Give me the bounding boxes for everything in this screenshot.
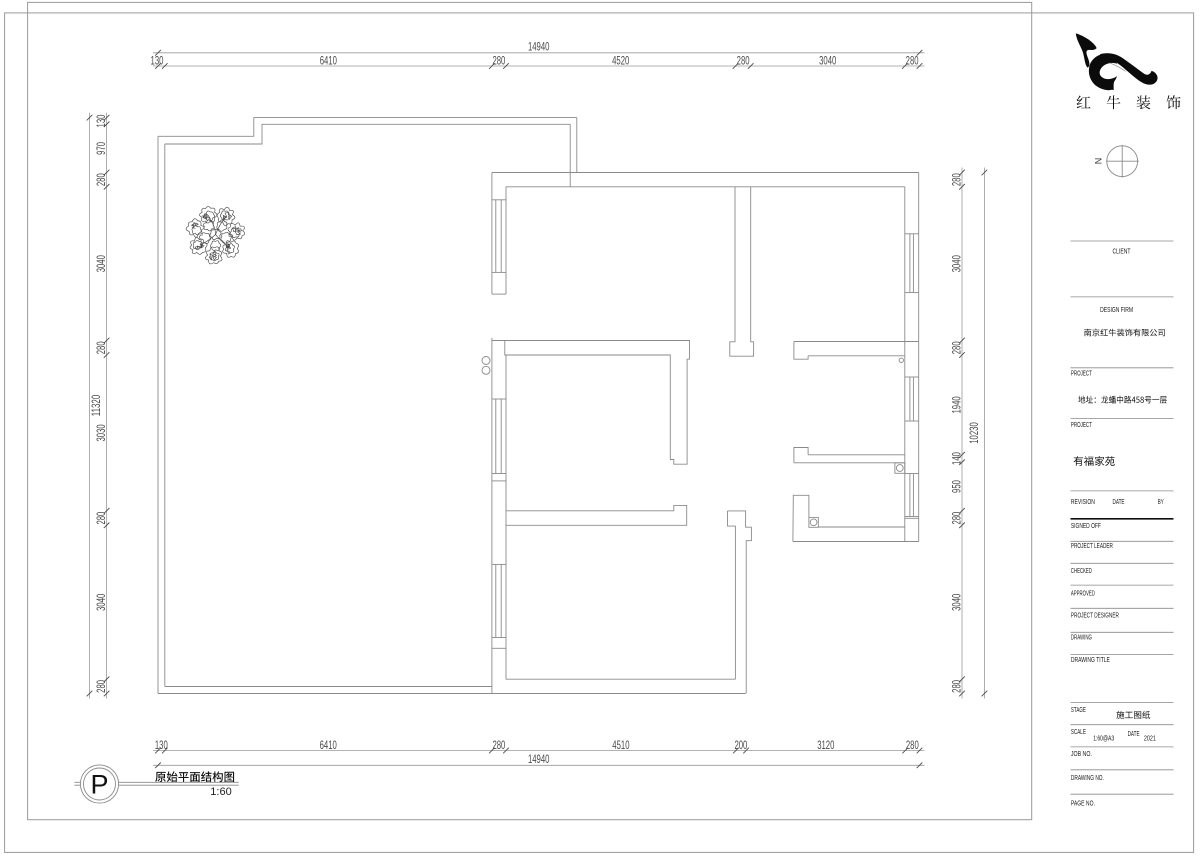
svg-text:3120: 3120	[817, 740, 834, 752]
svg-text:280: 280	[96, 341, 108, 354]
svg-text:SCALE: SCALE	[1071, 727, 1086, 736]
svg-text:APPROVED: APPROVED	[1071, 588, 1095, 597]
svg-text:DRAWING NO.: DRAWING NO.	[1071, 773, 1104, 782]
svg-text:280: 280	[952, 512, 964, 525]
svg-text:950: 950	[952, 480, 964, 493]
svg-text:280: 280	[492, 740, 505, 752]
svg-text:6410: 6410	[320, 56, 337, 68]
svg-text:PROJECT: PROJECT	[1071, 369, 1092, 378]
svg-text:CHECKED: CHECKED	[1071, 566, 1092, 575]
svg-text:280: 280	[492, 56, 505, 68]
svg-text:140: 140	[952, 452, 964, 465]
svg-text:280: 280	[96, 512, 108, 525]
svg-text:4510: 4510	[612, 740, 629, 752]
svg-text:280: 280	[96, 680, 108, 693]
svg-text:10230: 10230	[969, 422, 981, 444]
svg-text:14940: 14940	[528, 754, 550, 766]
svg-text:3030: 3030	[96, 424, 108, 441]
svg-text:130: 130	[155, 740, 168, 752]
svg-text:4520: 4520	[612, 56, 629, 68]
svg-text:DRAWING: DRAWING	[1071, 633, 1092, 642]
svg-text:280: 280	[737, 56, 750, 68]
svg-text:3040: 3040	[96, 255, 108, 272]
svg-text:DATE: DATE	[1128, 729, 1140, 738]
svg-text:DRAWING TITLE: DRAWING TITLE	[1071, 655, 1110, 664]
svg-text:280: 280	[952, 341, 964, 354]
svg-text:REVISION: REVISION	[1071, 497, 1095, 506]
svg-text:BY: BY	[1158, 497, 1164, 506]
svg-text:STAGE: STAGE	[1071, 705, 1086, 714]
svg-text:1940: 1940	[952, 396, 964, 413]
svg-text:280: 280	[906, 740, 919, 752]
svg-text:280: 280	[952, 680, 964, 693]
svg-text:PROJECT: PROJECT	[1071, 420, 1092, 429]
svg-text:2021: 2021	[1144, 734, 1156, 743]
svg-text:280: 280	[906, 56, 919, 68]
svg-text:DATE: DATE	[1113, 497, 1125, 506]
svg-text:130: 130	[151, 56, 164, 68]
svg-text:1:60: 1:60	[210, 786, 231, 798]
svg-text:280: 280	[952, 173, 964, 186]
svg-text:3040: 3040	[819, 56, 836, 68]
svg-text:280: 280	[96, 173, 108, 186]
svg-text:3040: 3040	[952, 255, 964, 272]
svg-text:200: 200	[734, 740, 747, 752]
svg-text:PROJECT LEADER: PROJECT LEADER	[1071, 541, 1113, 550]
svg-text:SIGNED OFF: SIGNED OFF	[1071, 521, 1101, 530]
svg-text:PROJECT DESIGNER: PROJECT DESIGNER	[1071, 611, 1119, 620]
svg-text:PAGE NO.: PAGE NO.	[1071, 798, 1095, 807]
svg-text:JOB NO.: JOB NO.	[1071, 749, 1092, 758]
svg-text:6410: 6410	[320, 740, 337, 752]
svg-text:3040: 3040	[952, 594, 964, 611]
svg-text:3040: 3040	[96, 594, 108, 611]
svg-text:P: P	[90, 770, 108, 800]
svg-text:970: 970	[96, 142, 108, 155]
svg-text:CLIENT: CLIENT	[1113, 247, 1131, 256]
svg-text:N: N	[1094, 158, 1104, 165]
svg-text:1:60@A3: 1:60@A3	[1093, 734, 1114, 743]
svg-text:DESIGN FIRM: DESIGN FIRM	[1100, 305, 1133, 314]
svg-text:11320: 11320	[91, 395, 103, 417]
svg-text:14940: 14940	[528, 42, 550, 54]
svg-text:130: 130	[96, 115, 108, 128]
